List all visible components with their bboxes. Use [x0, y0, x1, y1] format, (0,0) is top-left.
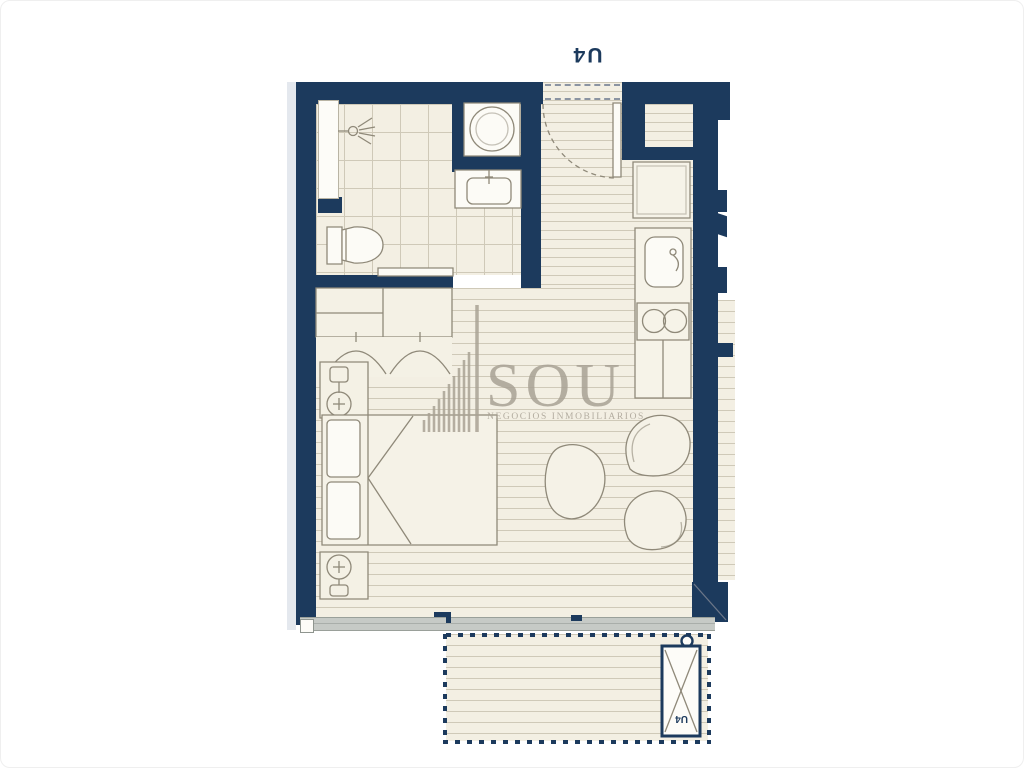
toilet-icon — [327, 227, 383, 264]
side-table — [545, 445, 605, 519]
bathroom-sink-icon — [455, 170, 521, 208]
washing-machine-icon — [464, 103, 520, 156]
outer-door-diagonal — [718, 213, 727, 237]
entry-door-leaf — [613, 103, 621, 177]
nightstand-top — [320, 362, 368, 418]
floor-plan-image: U4 — [0, 0, 1024, 768]
kitchen-sink-icon — [645, 237, 683, 287]
fixtures-overlay: U4 SOU NEGOCIOS INMOBILIARIOS — [0, 0, 1024, 768]
pillow — [327, 420, 360, 477]
pillow — [327, 482, 360, 539]
cooktop-icon — [637, 303, 689, 340]
lounge-chair-top — [626, 415, 690, 476]
watermark-tagline: NEGOCIOS INMOBILIARIOS — [487, 412, 645, 422]
shower-icon — [338, 118, 375, 144]
entry-door-swing — [543, 103, 621, 178]
sliding-bath-door — [378, 268, 453, 276]
nightstand-bottom — [320, 552, 368, 599]
lounge-chair-bottom — [625, 491, 687, 550]
fridge-icon — [633, 162, 690, 218]
watermark-name: SOU — [486, 352, 625, 420]
watermark-logo: SOU NEGOCIOS INMOBILIARIOS — [424, 305, 645, 432]
ac-unit: U4 — [662, 636, 700, 737]
double-bed — [322, 415, 497, 545]
ac-unit-label: U4 — [675, 713, 688, 724]
corner-hatch-line — [694, 584, 726, 620]
